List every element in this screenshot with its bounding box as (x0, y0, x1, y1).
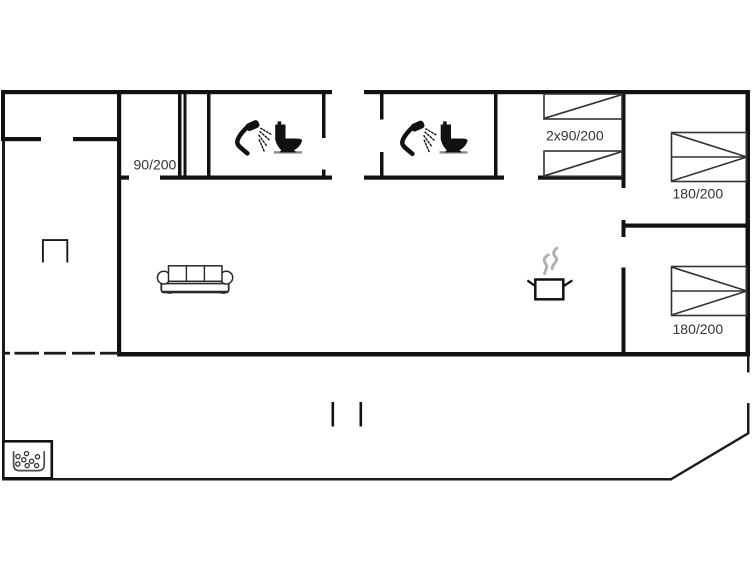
svg-text:2x90/200: 2x90/200 (546, 127, 604, 143)
svg-text:90/200: 90/200 (134, 157, 177, 173)
svg-text:180/200: 180/200 (673, 186, 724, 202)
svg-text:180/200: 180/200 (673, 321, 724, 337)
